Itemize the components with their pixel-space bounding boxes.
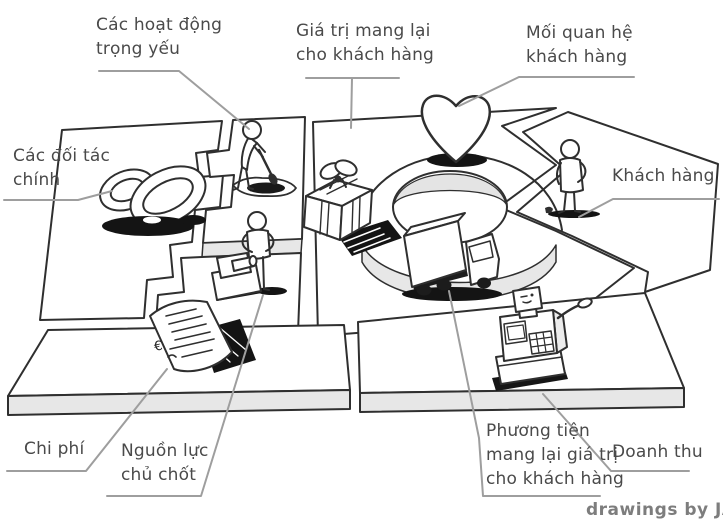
label-customers: Khách hàng: [612, 164, 715, 188]
label-key-activities: Các hoạt động trọng yếu: [96, 13, 222, 61]
label-costs: Chi phí: [24, 437, 84, 461]
label-value-proposition: Giá trị mang lại cho khách hàng: [296, 19, 434, 67]
label-revenue: Doanh thu: [612, 440, 703, 464]
business-model-canvas-sketch: € Các hoạt động trọng yếu Giá trị mang l…: [0, 0, 723, 530]
label-key-partners: Các đối tác chính: [13, 144, 110, 192]
revenue-slab-front: [360, 388, 684, 412]
label-customer-relationships: Mối quan hệ khách hàng: [526, 21, 633, 69]
label-channels: Phương tiện mang lại giá trị cho khách h…: [486, 419, 624, 491]
credit-text: drawings by JAM: [586, 500, 723, 520]
leader-key-activities: [99, 71, 249, 129]
heart-icon: [422, 96, 490, 167]
label-key-resources: Nguồn lực chủ chốt: [121, 439, 209, 487]
